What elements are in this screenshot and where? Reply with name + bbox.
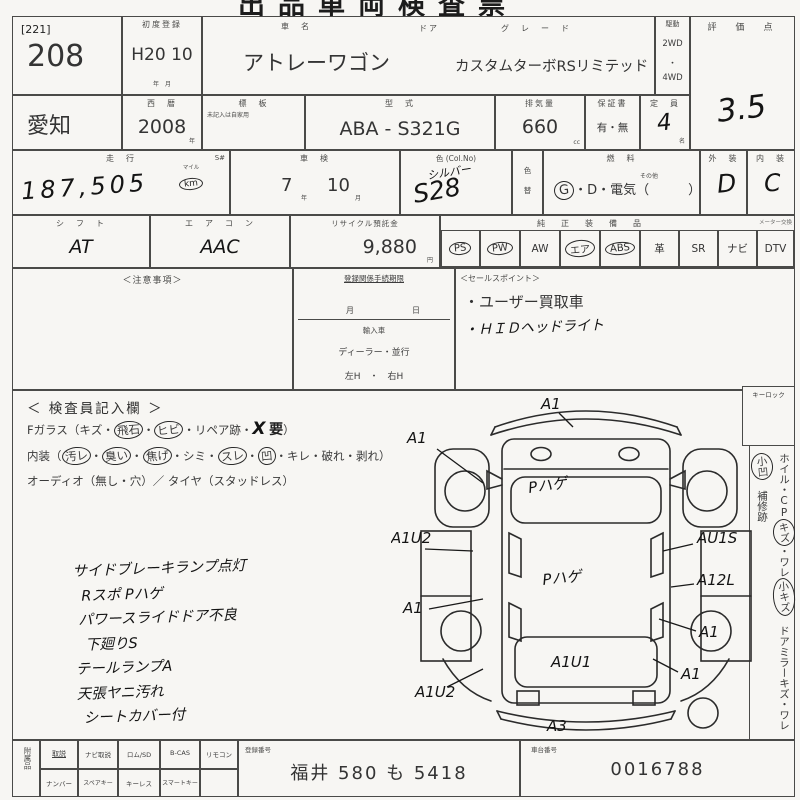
grade-value: カスタムターボRSリミテッド — [455, 55, 648, 76]
aircon-value: AAC — [151, 236, 289, 258]
inspection-label: 車 検 — [231, 153, 399, 164]
acc-keyless-cell: キーレス — [118, 769, 160, 797]
equip-navi: ナビ — [718, 230, 757, 267]
equip-navi-label: ナビ — [727, 241, 748, 256]
mileage-cell: 走 行 S# 187,505 マイル km — [12, 150, 230, 215]
interior-condition-line: 内装（汚レ・臭い・焦げ・シミ・スレ・凹・キレ・破れ・剥れ） — [27, 447, 391, 465]
interior-grade-cell: 内 装 C — [747, 150, 795, 215]
capacity-unit: 名 — [679, 136, 685, 145]
inspection-year: 7 — [281, 175, 292, 196]
color-change-label-2: 替 — [513, 185, 542, 196]
recycle-fee-cell: リサイクル預託金 9,880 円 — [290, 215, 440, 268]
drive-4wd: 4WD — [656, 73, 689, 83]
acc-number-plate: ナンバー — [41, 778, 77, 788]
note-line: シートカバー付 — [83, 701, 251, 731]
sales-points-cell: ＜セールスポイント＞ ・ユーザー買取車 ・ＨＩＤヘッドライト — [455, 268, 795, 390]
km-unit-circled: km — [179, 177, 204, 191]
fuel-options-rest: ・D・電気（ ） — [574, 183, 701, 198]
equipment-label: 純 正 装 備 品 — [441, 218, 741, 229]
accessories-label: 附属品 — [22, 747, 33, 770]
region-cell: 愛知 — [12, 95, 122, 150]
damage-top: A1 — [540, 395, 561, 413]
interior-label: 内 装 — [748, 153, 794, 164]
strip-scratch-circled: キズ — [772, 518, 796, 547]
damage-right-rear: A1 — [698, 623, 719, 641]
equip-leather-label: 革 — [654, 241, 665, 256]
acc-navi-manual-cell: ナビ取説 — [78, 740, 118, 769]
recycle-label: リサイクル預託金 — [291, 218, 439, 229]
model-label: 型 式 — [306, 98, 494, 109]
reg-import-label: 輸入車 — [294, 325, 454, 336]
keylock-label: キーロック — [743, 389, 794, 399]
equip-aw: AW — [520, 230, 560, 267]
equip-sr-label: SR — [692, 243, 706, 255]
exterior-grade-cell: 外 装 D — [700, 150, 747, 215]
drive-type-cell: 駆動 2WD ・ 4WD — [655, 16, 690, 95]
acc-rom-sd-cell: ロム/SD — [118, 740, 160, 769]
glass-x-mark: X — [252, 419, 265, 439]
s-mark: S# — [215, 154, 225, 162]
equip-abs-label: ABS — [605, 241, 636, 257]
acc-remote: リモコン — [201, 749, 237, 759]
fuel-label: 燃 料 — [544, 153, 699, 164]
warranty-label: 保証書 — [586, 98, 639, 109]
equip-leather: 革 — [640, 230, 679, 267]
acc-manual-cell: 取説 — [40, 740, 78, 769]
strip-seg: ホイル・CP — [778, 453, 790, 519]
first-registration-cell: 初度登録 H20 10 年 月 — [122, 16, 202, 95]
glass-seg: ・リペア跡・ — [183, 423, 252, 437]
chassis-number: 0016788 — [521, 759, 794, 780]
glass-flying-stone-circled: 飛石 — [113, 420, 143, 440]
reg-month-label: 月 — [346, 305, 354, 316]
strip-seg: 補修跡 — [756, 480, 768, 522]
color-change-label-1: 色 — [513, 165, 542, 176]
sales-point-1: ・ユーザー買取車 — [464, 291, 584, 312]
first-registration-units: 年 月 — [123, 79, 201, 88]
int-seg: 内装（ — [27, 449, 62, 463]
region-value: 愛知 — [27, 108, 71, 140]
aircon-cell: エ ア コ ン AAC — [150, 215, 290, 268]
sales-points-label: ＜セールスポイント＞ — [460, 273, 540, 284]
recycle-unit: 円 — [427, 255, 433, 264]
shift-value: AT — [13, 236, 149, 258]
equip-airbag: エア — [560, 230, 600, 267]
exterior-label: 外 装 — [701, 153, 746, 164]
strip-seg: ・ワレ — [778, 546, 790, 578]
acc-bcas: B-CAS — [161, 749, 199, 757]
chassis-number-label: 車台番号 — [531, 744, 557, 754]
equip-ps: PS — [441, 230, 480, 267]
door-label: ドア — [419, 23, 439, 34]
caution-notes-cell: ＜注意事項＞ — [12, 268, 293, 390]
drive-separator: ・ — [656, 57, 689, 69]
inspector-handwritten-notes: サイドブレーキランプ点灯 Rスポ Pハゲ パワースライドドア不良 下廻りS テー… — [72, 554, 251, 731]
mileage-value: 187,505 — [20, 169, 149, 206]
shift-label: シ フ ト — [13, 218, 149, 229]
shift-cell: シ フ ト AT — [12, 215, 150, 268]
reg-handle-label: 左H ・ 右H — [294, 369, 454, 382]
glass-seg: Fガラス（キズ・ — [27, 423, 114, 437]
equip-abs: ABS — [600, 230, 640, 267]
aircon-label: エ ア コ ン — [151, 218, 289, 229]
glass-seg: ） — [283, 423, 295, 437]
strip-small-dent-circled: 小凹 — [750, 452, 774, 481]
damage-roof: Pハゲ — [542, 567, 585, 589]
equip-pw: PW — [480, 230, 520, 267]
int-burn-circled: 焦げ — [142, 446, 172, 466]
car-name-grade-cell: 車 名 ドア グ レ ー ド アトレーワゴン カスタムターボRSリミテッド — [202, 16, 655, 95]
recycle-value: 9,880 — [363, 236, 417, 258]
acc-keyless: キーレス — [119, 778, 159, 788]
equip-pw-label: PW — [487, 241, 514, 256]
acc-spare-key-cell: スペアキー — [78, 769, 118, 797]
plate-type-note: 未記入は自家用 — [207, 110, 249, 119]
acc-navi-manual: ナビ取説 — [79, 749, 117, 759]
first-registration-value: H20 10 — [123, 45, 201, 65]
year-value: 2008 — [123, 116, 201, 138]
reg-dealer-label: ディーラー・並行 — [294, 345, 454, 358]
score-label: 評 価 点 — [691, 20, 794, 33]
int-seg: ・シミ・ — [172, 449, 218, 463]
acc-manual: 取説 — [41, 749, 77, 759]
damage-rear-bumper: A3 — [546, 717, 567, 735]
registration-procedure-title: 登録関係手続期限 — [294, 273, 454, 284]
registration-number-cell: 登録番号 福井 580 も 5418 — [238, 740, 520, 797]
reg-day-label: 日 — [412, 305, 420, 316]
exterior-grade: D — [716, 168, 738, 199]
interior-grade: C — [763, 168, 782, 197]
keylock-box: キーロック — [742, 386, 795, 446]
mile-unit-label: マイル — [179, 163, 203, 171]
glass-seg: ・ — [143, 423, 155, 437]
int-wear-circled: スレ — [217, 446, 247, 466]
inspection-year-unit: 年 — [301, 193, 307, 202]
color-cell: 色 (Col.No) シルバー S28 — [400, 150, 512, 215]
inspection-expiry-cell: 車 検 7 年 10 月 — [230, 150, 400, 215]
damage-left-rear: A1 — [402, 599, 423, 617]
acc-empty-cell — [200, 769, 238, 797]
equip-sr: SR — [679, 230, 718, 267]
acc-rom-sd: ロム/SD — [119, 749, 159, 759]
model-value: ABA - S321G — [306, 118, 494, 140]
damage-left-mid: A1U2 — [391, 529, 431, 547]
score-cell: 評 価 点 3.5 — [690, 16, 795, 150]
damage-right-mid: AU1S — [696, 529, 738, 547]
displacement-unit: cc — [573, 139, 580, 146]
equip-ps-label: PS — [449, 241, 472, 256]
damage-tailgate: A1U1 — [550, 653, 591, 671]
lot-cell: [221] 208 — [12, 16, 122, 95]
displacement-cell: 排気量 660 cc — [495, 95, 585, 150]
year-cell: 西 暦 2008 年 — [122, 95, 202, 150]
caution-notes-label: ＜注意事項＞ — [13, 273, 292, 286]
chassis-number-cell: 車台番号 0016788 — [520, 740, 795, 797]
score-value: 3.5 — [715, 88, 768, 130]
fuel-options: G・D・電気（ ） — [554, 179, 701, 200]
registration-number: 福井 580 も 5418 — [239, 759, 519, 785]
wheel-mirror-strip: ホイル・CPキズ・ワレ小キズ ドアミラーキズ・ワレ小凹 補修跡 — [753, 453, 795, 735]
meter-note: メーター交換 — [759, 218, 792, 226]
first-registration-label: 初度登録 — [123, 19, 201, 30]
strip-small-scratch-circled: 小キズ — [771, 577, 796, 616]
glass-crack-circled: ヒビ — [154, 420, 184, 440]
displacement-value: 660 — [496, 116, 584, 138]
sales-point-2: ・ＨＩＤヘッドライト — [464, 315, 605, 340]
glass-condition-line: Fガラス（キズ・飛石・ヒビ・リペア跡・X 要） — [27, 419, 295, 439]
inspection-area: ＜ 検査員記入欄 ＞ Fガラス（キズ・飛石・ヒビ・リペア跡・X 要） 内装（汚レ… — [12, 390, 795, 740]
year-label: 西 暦 — [123, 98, 201, 109]
car-damage-diagram: A1 A1 Pハゲ A1U2 AU1S Pハゲ A12L A1 A1 A1U1 … — [391, 391, 791, 741]
equip-dtv-label: DTV — [765, 243, 787, 255]
drive-2wd: 2WD — [656, 39, 689, 49]
damage-left-low: A1U2 — [414, 683, 455, 701]
acc-smart-key-cell: スマートキー — [160, 769, 200, 797]
capacity-label: 定 員 — [641, 98, 689, 109]
mileage-unit-block: マイル km — [179, 163, 203, 190]
damage-front-left: A1 — [406, 429, 427, 447]
acc-number-plate-cell: ナンバー — [40, 769, 78, 797]
int-smell-circled: 臭い — [101, 446, 131, 466]
capacity-value: 4 — [656, 109, 673, 136]
acc-remote-cell: リモコン — [200, 740, 238, 769]
audio-tire-line: オーディオ（無し・穴）／ タイヤ（スタッドレス） — [27, 473, 294, 489]
year-unit: 年 — [189, 136, 195, 145]
equip-dtv: DTV — [757, 230, 794, 267]
lot-number: 208 — [27, 39, 84, 74]
inspection-month-unit: 月 — [355, 193, 361, 202]
acc-spare-key: スペアキー — [79, 778, 117, 787]
drive-label: 駆動 — [656, 19, 689, 29]
accessories-label-cell: 附属品 — [12, 740, 40, 797]
capacity-cell: 定 員 4 名 — [640, 95, 690, 150]
acc-bcas-cell: B-CAS — [160, 740, 200, 769]
int-seg: ・キレ・破れ・剥れ） — [276, 449, 391, 463]
auction-sheet: 出品車両検査票 [221] 208 初度登録 H20 10 年 月 車 名 ドア… — [0, 0, 800, 800]
registration-number-label: 登録番号 — [245, 744, 271, 754]
int-seg: ・ — [91, 449, 103, 463]
fuel-gasoline-circled: G — [553, 180, 575, 201]
int-dirt-circled: 汚レ — [61, 446, 91, 466]
lot-bracket: [221] — [21, 23, 51, 36]
int-seg: ・ — [247, 449, 259, 463]
plate-type-cell: 標 板 未記入は自家用 — [202, 95, 305, 150]
warranty-value: 有・無 — [586, 120, 639, 135]
equip-airbag-label: エア — [564, 239, 595, 259]
inspection-month: 10 — [327, 175, 350, 196]
color-number: S28 — [411, 172, 463, 209]
glass-required: 要 — [269, 422, 283, 438]
equip-aw-label: AW — [532, 243, 549, 255]
reg-divider — [298, 319, 450, 320]
inspector-title: ＜ 検査員記入欄 ＞ — [27, 397, 164, 417]
car-name: アトレーワゴン — [243, 47, 390, 77]
color-change-cell: 色 替 — [512, 150, 543, 215]
plate-type-label: 標 板 — [203, 98, 304, 109]
registration-procedure-box: 登録関係手続期限 月 日 輸入車 ディーラー・並行 左H ・ 右H — [293, 268, 455, 390]
grade-label: グ レ ー ド — [501, 23, 571, 34]
warranty-cell: 保証書 有・無 — [585, 95, 640, 150]
equipment-block: 純 正 装 備 品 メーター交換 PS PW AW エア ABS 革 SR ナビ… — [440, 215, 795, 268]
car-name-label: 車 名 — [281, 21, 311, 32]
fuel-cell: 燃 料 その他 G・D・電気（ ） — [543, 150, 700, 215]
strip-seg: ドアミラーキズ・ワレ — [778, 615, 790, 731]
model-code-cell: 型 式 ABA - S321G — [305, 95, 495, 150]
acc-smart-key: スマートキー — [161, 778, 199, 787]
int-seg: ・ — [131, 449, 143, 463]
int-dent-circled: 凹 — [257, 446, 276, 465]
displacement-label: 排気量 — [496, 98, 584, 109]
damage-right-quarter: A12L — [696, 571, 735, 589]
damage-right-low: A1 — [680, 665, 701, 683]
